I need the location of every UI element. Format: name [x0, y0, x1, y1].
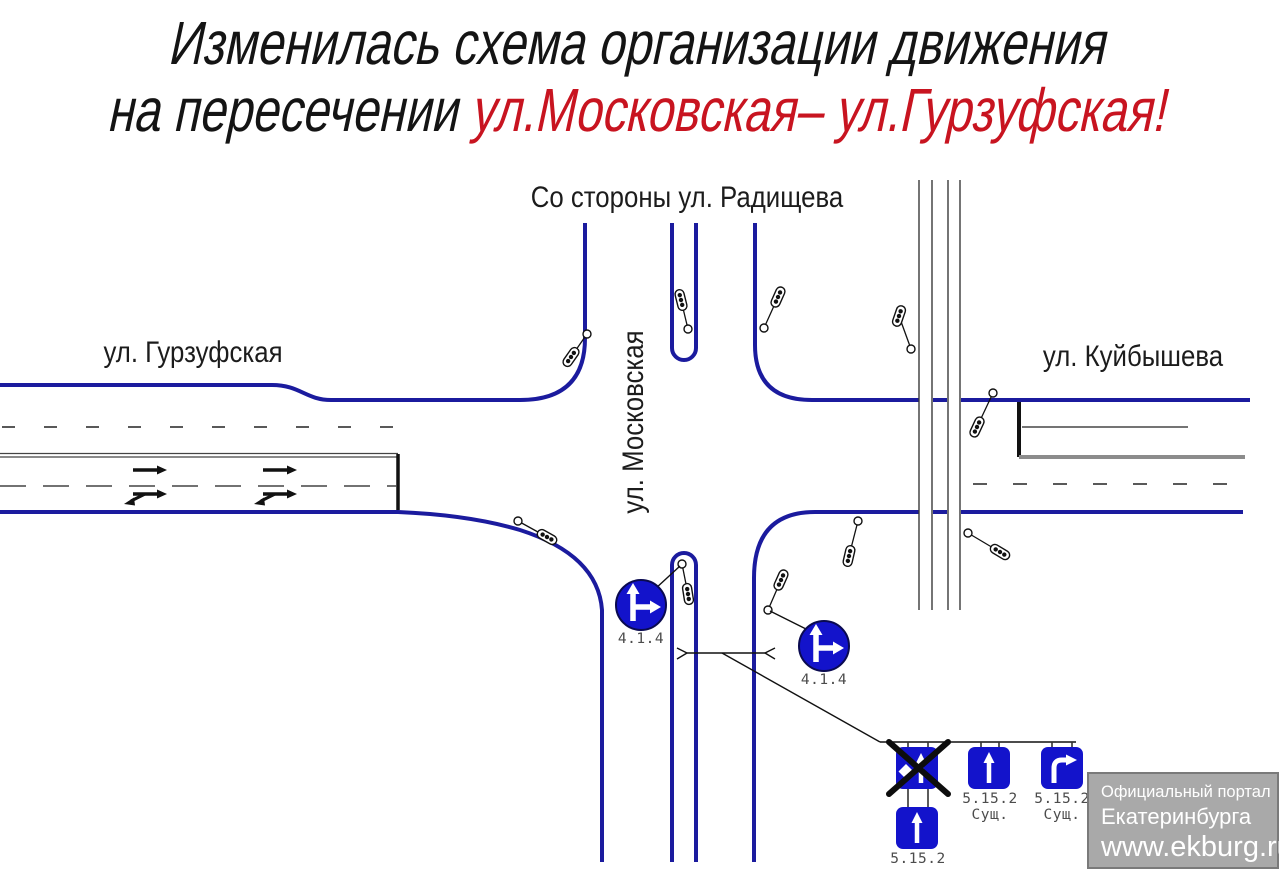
- west-road-markings: [0, 427, 420, 510]
- lane-sign-straight-new-icon: [896, 807, 938, 849]
- street-label-gurzufskaya: ул. Гурзуфская: [103, 338, 282, 368]
- traffic-signal-icon: [891, 305, 915, 353]
- sign-code-label: 5.15.2 Сущ.: [1034, 792, 1089, 824]
- sign-note: Сущ.: [962, 808, 1017, 824]
- title-line-2: на пересечении ул.Московская– ул.Гурзуфс…: [104, 80, 1175, 141]
- street-label-from-radishcheva: Со стороны ул. Радищева: [531, 183, 844, 213]
- traffic-signal-icon: [968, 389, 997, 438]
- road-edge-north-east: [755, 223, 919, 400]
- lane-sign-right-turn-existing-icon: [1041, 747, 1083, 789]
- sign-4-1-4-straight-or-right-icon: [799, 621, 849, 671]
- title-line-2-black: на пересечении: [104, 76, 482, 144]
- street-label-kuibysheva: ул. Куйбышева: [1043, 342, 1223, 372]
- lane-arrow-straight-icon: [263, 466, 297, 475]
- sign-code-label: 4.1.4: [618, 632, 664, 648]
- watermark-line-1: Официальный портал: [1101, 781, 1277, 803]
- traffic-signal-icon: [674, 289, 692, 333]
- sign-code-label: 5.15.2: [890, 852, 945, 868]
- traffic-signal-icon: [964, 529, 1011, 561]
- watermark: Официальный портал Екатеринбурга www.ekb…: [1087, 772, 1279, 869]
- lane-sign-crossed-out-icon: [889, 742, 948, 794]
- title-line-1: Изменилась схема организации движения: [165, 13, 1115, 74]
- traffic-scheme-poster: Изменилась схема организации движения на…: [0, 0, 1280, 870]
- lane-arrow-straight-left-icon: [254, 490, 297, 506]
- tram-tracks: [919, 180, 960, 610]
- sign-code: 5.15.2: [962, 792, 1017, 808]
- lane-sign-straight-existing-icon: [968, 747, 1010, 789]
- watermark-line-3: www.ekburg.ru: [1101, 831, 1277, 864]
- east-road-markings: [973, 402, 1245, 484]
- road-edge-west-north: [0, 223, 585, 400]
- lane-arrow-straight-icon: [133, 466, 167, 475]
- sign-note: Сущ.: [1034, 808, 1089, 824]
- traffic-signal-icon: [760, 286, 786, 332]
- road-edge-west-south: [0, 512, 602, 862]
- sign-code: 5.15.2: [1034, 792, 1089, 808]
- traffic-signal-icon: [764, 569, 789, 614]
- sign-4-1-4-straight-or-right-icon: [616, 580, 666, 630]
- lane-arrow-straight-left-icon: [124, 490, 167, 506]
- sign-code-label: 5.15.2 Сущ.: [962, 792, 1017, 824]
- leader-lines: [655, 566, 1076, 742]
- sign-code-label: 4.1.4: [801, 673, 847, 689]
- traffic-signal-icon: [842, 517, 862, 567]
- title-line-2-red: ул.Московская– ул.Гурзуфская!: [467, 76, 1176, 144]
- street-label-moskovskaya: ул. Московская: [619, 330, 649, 513]
- traffic-signal-icon: [561, 330, 591, 368]
- traffic-signals: [514, 286, 1011, 614]
- traffic-signal-icon: [678, 560, 694, 605]
- title-line-1-text: Изменилась схема организации движения: [164, 9, 1115, 77]
- watermark-line-2: Екатеринбурга: [1101, 803, 1277, 831]
